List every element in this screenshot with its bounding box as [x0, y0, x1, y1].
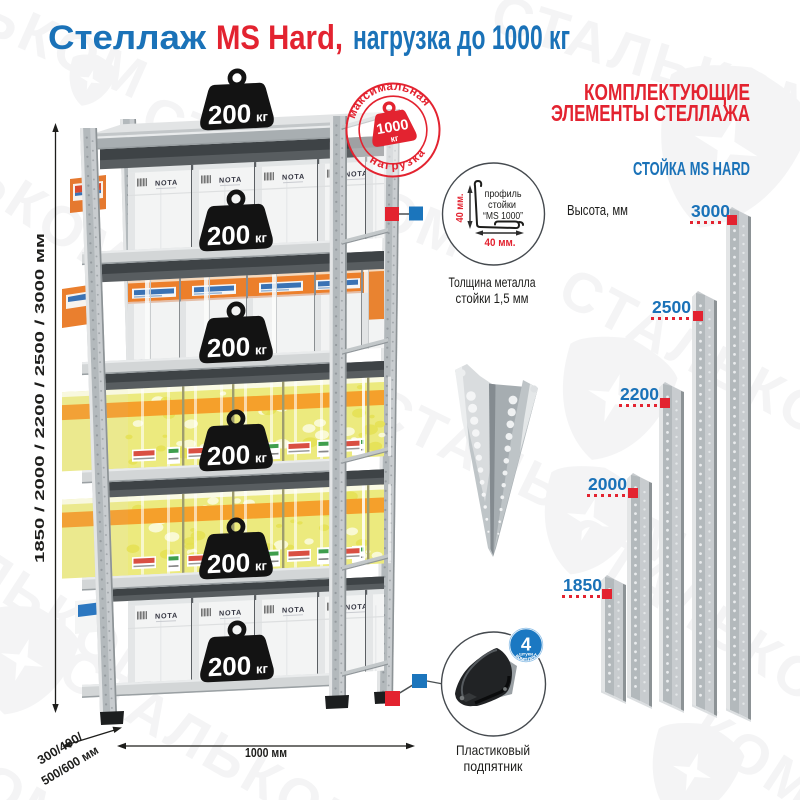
- svg-text:NOTA: NOTA: [282, 605, 305, 615]
- svg-text:3000: 3000: [691, 201, 730, 221]
- svg-text:Пластиковый: Пластиковый: [456, 742, 530, 758]
- svg-text:NOTA: NOTA: [155, 178, 178, 188]
- svg-text:1850: 1850: [563, 575, 602, 595]
- svg-text:NOTA: NOTA: [345, 169, 368, 179]
- svg-text:1850 / 2000 / 2200 / 2500 / 30: 1850 / 2000 / 2200 / 2500 / 3000 мм: [32, 233, 47, 563]
- svg-text:2500: 2500: [652, 297, 691, 317]
- svg-text:NOTA: NOTA: [219, 175, 242, 185]
- svg-text:2000: 2000: [588, 474, 627, 494]
- svg-text:Толщина металла: Толщина металла: [449, 275, 536, 290]
- svg-text:NOTA: NOTA: [155, 611, 178, 621]
- svg-text:подпятник: подпятник: [464, 758, 524, 774]
- svg-text:NOTA: NOTA: [219, 608, 242, 618]
- svg-text:2200: 2200: [620, 384, 659, 404]
- svg-text:“MS 1000”: “MS 1000”: [483, 210, 523, 222]
- svg-text:нагрузка до 1000 кг: нагрузка до 1000 кг: [353, 19, 570, 57]
- svg-text:40 мм.: 40 мм.: [485, 237, 516, 249]
- svg-text:1000 мм: 1000 мм: [245, 746, 287, 760]
- svg-text:СТОЙКА MS HARD: СТОЙКА MS HARD: [633, 158, 750, 179]
- svg-text:штуки: штуки: [519, 652, 533, 657]
- svg-text:Высота, мм: Высота, мм: [567, 202, 628, 219]
- svg-text:NOTA: NOTA: [345, 602, 368, 612]
- svg-text:40 мм.: 40 мм.: [454, 193, 466, 222]
- svg-text:ЭЛЕМЕНТЫ СТЕЛЛАЖА: ЭЛЕМЕНТЫ СТЕЛЛАЖА: [551, 100, 750, 126]
- svg-text:Стеллаж: Стеллаж: [48, 19, 207, 57]
- svg-text:NOTA: NOTA: [282, 172, 305, 182]
- svg-text:MS Hard,: MS Hard,: [216, 19, 343, 57]
- svg-text:стойки 1,5 мм: стойки 1,5 мм: [456, 291, 529, 306]
